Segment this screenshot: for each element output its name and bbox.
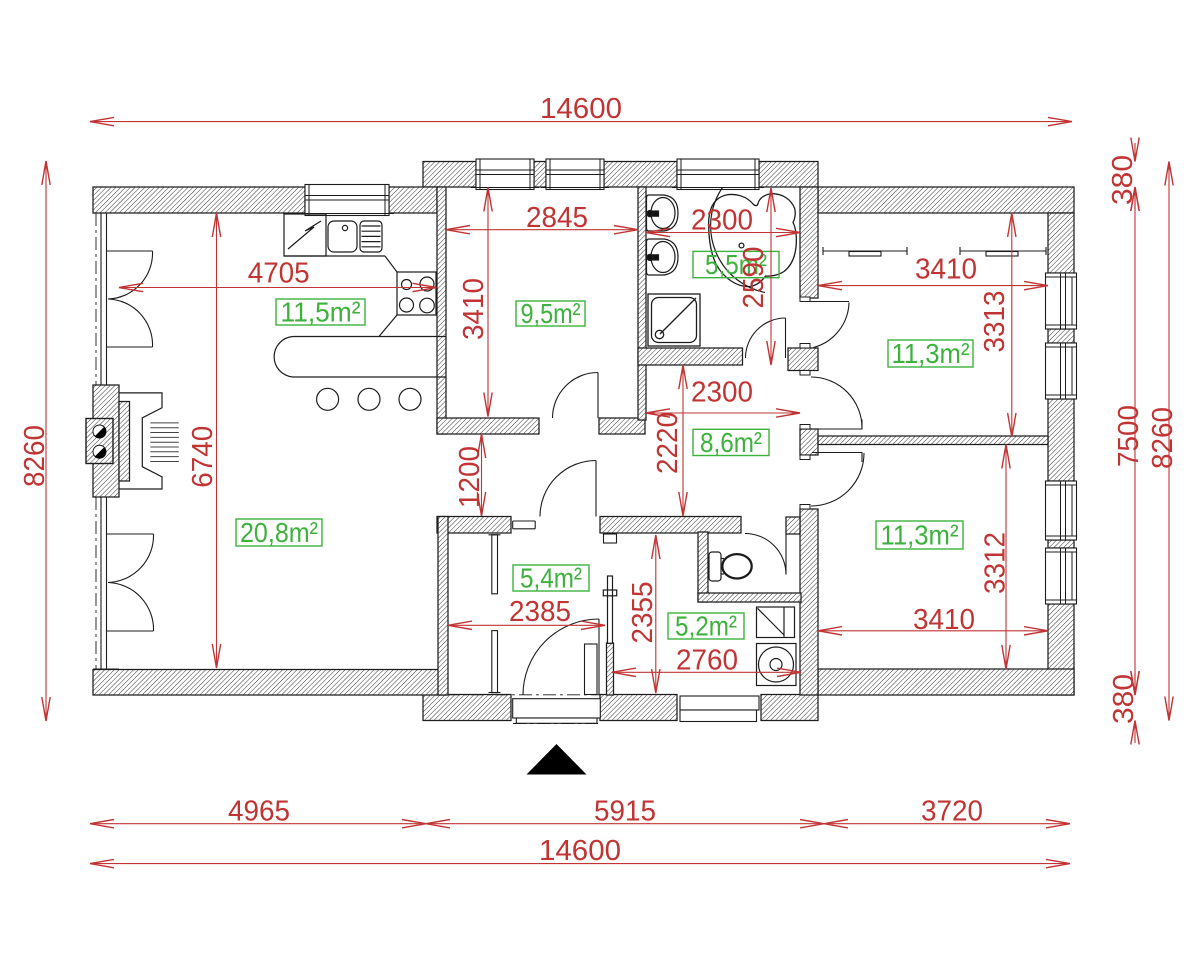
svg-text:2300: 2300 <box>691 377 753 409</box>
svg-text:5915: 5915 <box>594 796 656 828</box>
svg-text:2760: 2760 <box>676 645 738 677</box>
svg-text:7500: 7500 <box>1113 405 1145 467</box>
svg-text:1200: 1200 <box>454 446 486 508</box>
svg-text:2845: 2845 <box>526 202 588 234</box>
svg-text:8,6m²: 8,6m² <box>700 427 762 458</box>
svg-text:14600: 14600 <box>539 835 621 867</box>
svg-text:5,2m²: 5,2m² <box>675 611 737 642</box>
svg-text:14600: 14600 <box>540 93 622 125</box>
svg-text:380: 380 <box>1108 674 1140 724</box>
svg-text:2590: 2590 <box>738 247 770 309</box>
svg-text:2355: 2355 <box>627 582 659 644</box>
svg-text:3410: 3410 <box>458 278 490 340</box>
svg-text:8260: 8260 <box>1147 407 1179 469</box>
svg-text:11,3m²: 11,3m² <box>892 338 970 369</box>
svg-text:3313: 3313 <box>979 291 1011 353</box>
svg-text:2300: 2300 <box>691 205 753 237</box>
svg-text:11,5m²: 11,5m² <box>281 297 361 328</box>
svg-text:20,8m²: 20,8m² <box>240 517 318 548</box>
svg-text:4965: 4965 <box>228 796 290 828</box>
svg-text:380: 380 <box>1107 155 1139 205</box>
svg-text:2220: 2220 <box>652 412 684 474</box>
svg-text:3410: 3410 <box>913 604 975 636</box>
svg-text:5,4m²: 5,4m² <box>520 563 582 594</box>
svg-text:11,3m²: 11,3m² <box>881 520 959 551</box>
svg-text:9,5m²: 9,5m² <box>521 298 581 329</box>
svg-text:2385: 2385 <box>509 596 571 628</box>
svg-text:4705: 4705 <box>248 258 310 290</box>
svg-text:3410: 3410 <box>915 253 977 285</box>
svg-text:3720: 3720 <box>921 796 983 828</box>
svg-text:6740: 6740 <box>187 426 219 488</box>
svg-text:8260: 8260 <box>19 425 51 487</box>
svg-text:3312: 3312 <box>980 532 1012 594</box>
